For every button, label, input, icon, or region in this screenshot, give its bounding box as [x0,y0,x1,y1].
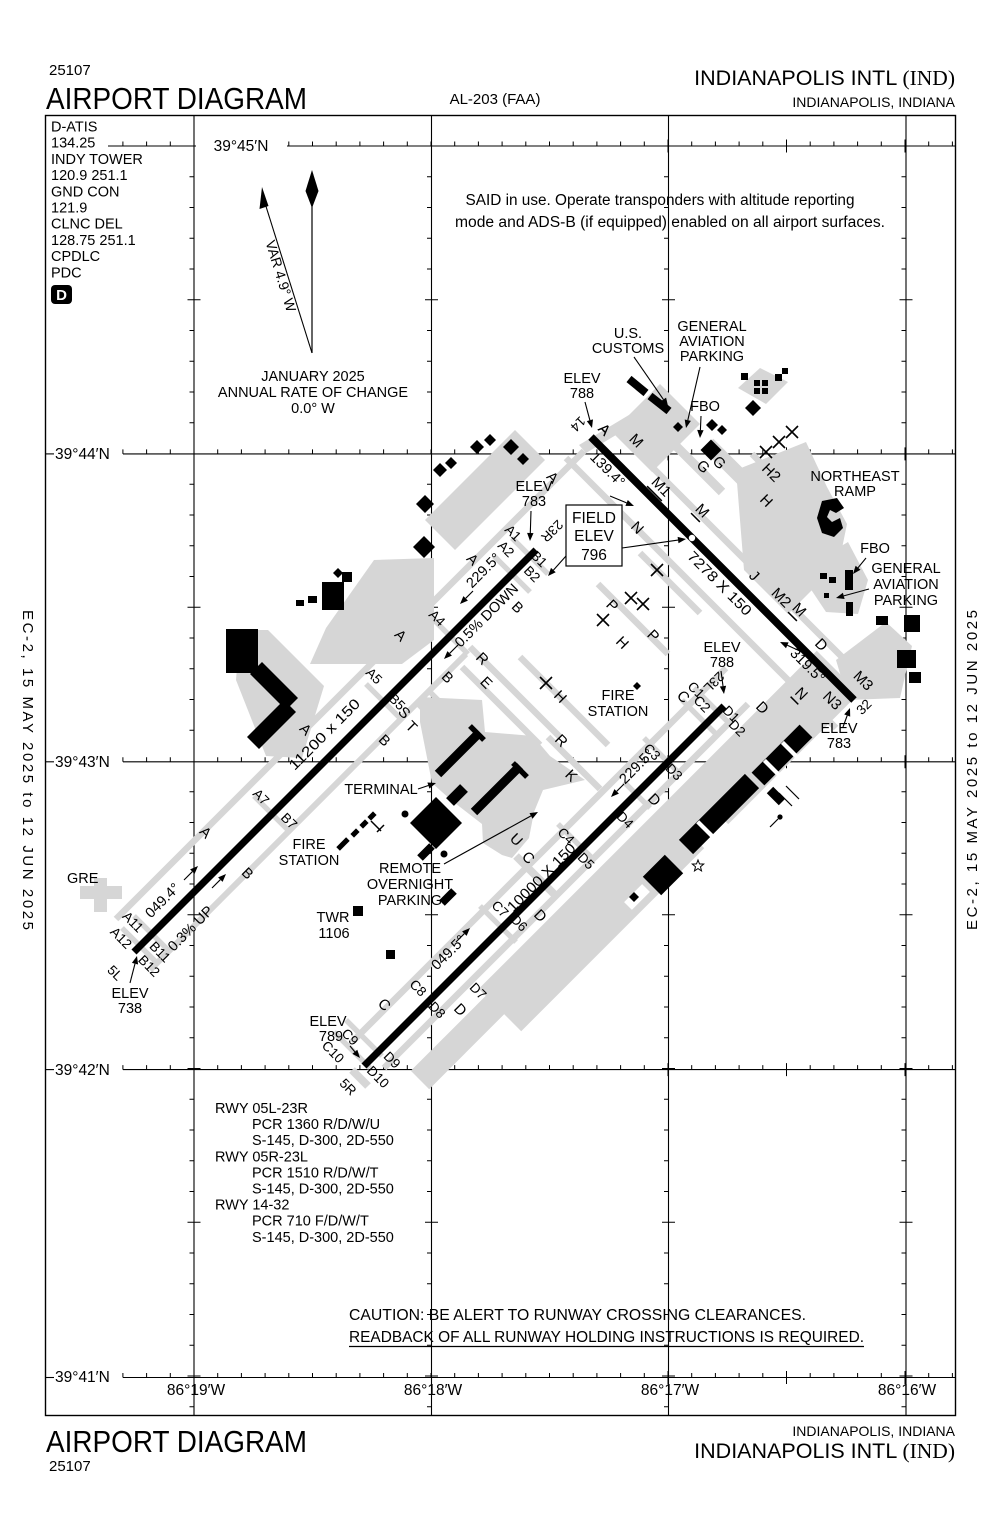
svg-text:ELEV: ELEV [703,640,740,656]
svg-text:EC-2, 15 MAY 2025 to 12 JUN: EC-2, 15 MAY 2025 to 12 JUN 2025 [964,610,981,930]
svg-text:INDY TOWER: INDY TOWER [51,152,143,168]
svg-text:PCR 1510 R/D/W/T: PCR 1510 R/D/W/T [252,1165,379,1181]
svg-text:ANNUAL RATE OF CHANGE: ANNUAL RATE OF CHANGE [218,385,408,401]
svg-text:GENERAL: GENERAL [677,319,746,335]
svg-text:39°44′N: 39°44′N [55,446,110,463]
svg-text:TERMINAL: TERMINAL [344,782,417,798]
svg-text:TWR: TWR [316,910,349,926]
svg-text:FBO: FBO [690,399,720,415]
svg-text:796: 796 [581,547,607,564]
svg-text:86°18′W: 86°18′W [404,1382,463,1399]
svg-text:FBO: FBO [860,541,890,557]
svg-text:PDC: PDC [51,265,82,281]
svg-text:86°19′W: 86°19′W [167,1382,226,1399]
svg-text:120.9 251.1: 120.9 251.1 [51,168,128,184]
svg-text:RAMP: RAMP [834,484,876,500]
svg-text:INDIANAPOLIS INTL (IND): INDIANAPOLIS INTL (IND) [694,66,955,90]
svg-text:788: 788 [710,655,734,671]
svg-text:25107: 25107 [49,1458,91,1475]
svg-text:25107: 25107 [49,62,91,79]
svg-text:39°45′N: 39°45′N [214,138,269,155]
svg-text:ELEV: ELEV [515,479,552,495]
svg-text:ELEV: ELEV [820,721,857,737]
svg-text:SAID in use. Operate transpond: SAID in use. Operate transponders with a… [466,192,855,209]
svg-text:REMOTE: REMOTE [379,861,441,877]
svg-text:S-145, D-300, 2D-550: S-145, D-300, 2D-550 [252,1133,394,1149]
svg-text:INDIANAPOLIS, INDIANA: INDIANAPOLIS, INDIANA [792,94,955,110]
svg-text:FIELD: FIELD [572,510,616,527]
svg-text:AVIATION: AVIATION [679,334,745,350]
svg-text:ELEV: ELEV [111,986,148,1002]
svg-text:ELEV: ELEV [309,1014,346,1030]
svg-text:788: 788 [570,386,594,402]
svg-text:0.0° W: 0.0° W [291,401,335,417]
svg-text:1106: 1106 [318,926,349,942]
svg-text:GENERAL: GENERAL [871,561,940,577]
svg-text:STATION: STATION [588,704,649,720]
svg-text:RWY 14-32: RWY 14-32 [215,1198,289,1214]
svg-text:CPDLC: CPDLC [51,249,100,265]
svg-text:D-ATIS: D-ATIS [51,120,97,136]
svg-text:ELEV: ELEV [574,528,614,545]
svg-text:PCR 710 F/D/W/T: PCR 710 F/D/W/T [252,1214,369,1230]
svg-text:INDIANAPOLIS, INDIANA: INDIANAPOLIS, INDIANA [792,1423,955,1439]
svg-text:FIRE: FIRE [601,688,634,704]
svg-text:134.25: 134.25 [51,136,95,152]
svg-text:AL-203 (FAA): AL-203 (FAA) [450,91,541,108]
svg-text:D: D [56,287,67,304]
svg-text:GND CON: GND CON [51,184,119,200]
svg-text:S-145, D-300, 2D-550: S-145, D-300, 2D-550 [252,1182,394,1198]
svg-text:AIRPORT DIAGRAM: AIRPORT DIAGRAM [46,81,307,116]
svg-text:PARKING: PARKING [378,893,442,909]
svg-text:CUSTOMS: CUSTOMS [592,341,664,357]
svg-text:PCR 1360 R/D/W/U: PCR 1360 R/D/W/U [252,1117,380,1133]
svg-text:GRE: GRE [67,871,99,887]
svg-text:86°17′W: 86°17′W [641,1382,700,1399]
svg-text:RWY 05L-23R: RWY 05L-23R [215,1101,308,1117]
svg-text:FIRE: FIRE [292,837,325,853]
svg-text:NORTHEAST: NORTHEAST [810,469,899,485]
svg-text:mode and ADS-B (if equipped) e: mode and ADS-B (if equipped) enabled on … [455,214,885,231]
svg-text:121.9: 121.9 [51,201,87,217]
svg-text:128.75 251.1: 128.75 251.1 [51,233,136,249]
svg-text:783: 783 [827,736,851,752]
svg-text:READBACK OF ALL RUNWAY HOLDING: READBACK OF ALL RUNWAY HOLDING INSTRUCTI… [349,1329,864,1346]
svg-text:STATION: STATION [279,853,340,869]
svg-text:AVIATION: AVIATION [873,577,939,593]
svg-text:CLNC DEL: CLNC DEL [51,217,123,233]
svg-text:CAUTION: BE ALERT TO RUNWAY CR: CAUTION: BE ALERT TO RUNWAY CROSSING CLE… [349,1307,806,1324]
svg-text:INDIANAPOLIS INTL (IND): INDIANAPOLIS INTL (IND) [694,1439,955,1463]
svg-text:AIRPORT DIAGRAM: AIRPORT DIAGRAM [46,1424,307,1459]
svg-text:JANUARY 2025: JANUARY 2025 [261,369,364,385]
svg-text:RWY 05R-23L: RWY 05R-23L [215,1149,308,1165]
svg-text:OVERNIGHT: OVERNIGHT [367,877,453,893]
svg-text:ELEV: ELEV [563,371,600,387]
svg-text:PARKING: PARKING [680,349,744,365]
svg-text:EC-2, 15 MAY 2025 to 12 JUN: EC-2, 15 MAY 2025 to 12 JUN 2025 [19,610,36,930]
svg-text:39°42′N: 39°42′N [55,1062,110,1079]
svg-text:789: 789 [319,1029,343,1045]
svg-text:PARKING: PARKING [874,593,938,609]
svg-text:39°43′N: 39°43′N [55,754,110,771]
svg-text:86°16′W: 86°16′W [878,1382,937,1399]
svg-text:738: 738 [118,1001,142,1017]
svg-text:783: 783 [522,494,546,510]
svg-text:S-145, D-300, 2D-550: S-145, D-300, 2D-550 [252,1230,394,1246]
svg-text:U.S.: U.S. [614,326,642,342]
svg-text:39°41′N: 39°41′N [55,1369,110,1386]
